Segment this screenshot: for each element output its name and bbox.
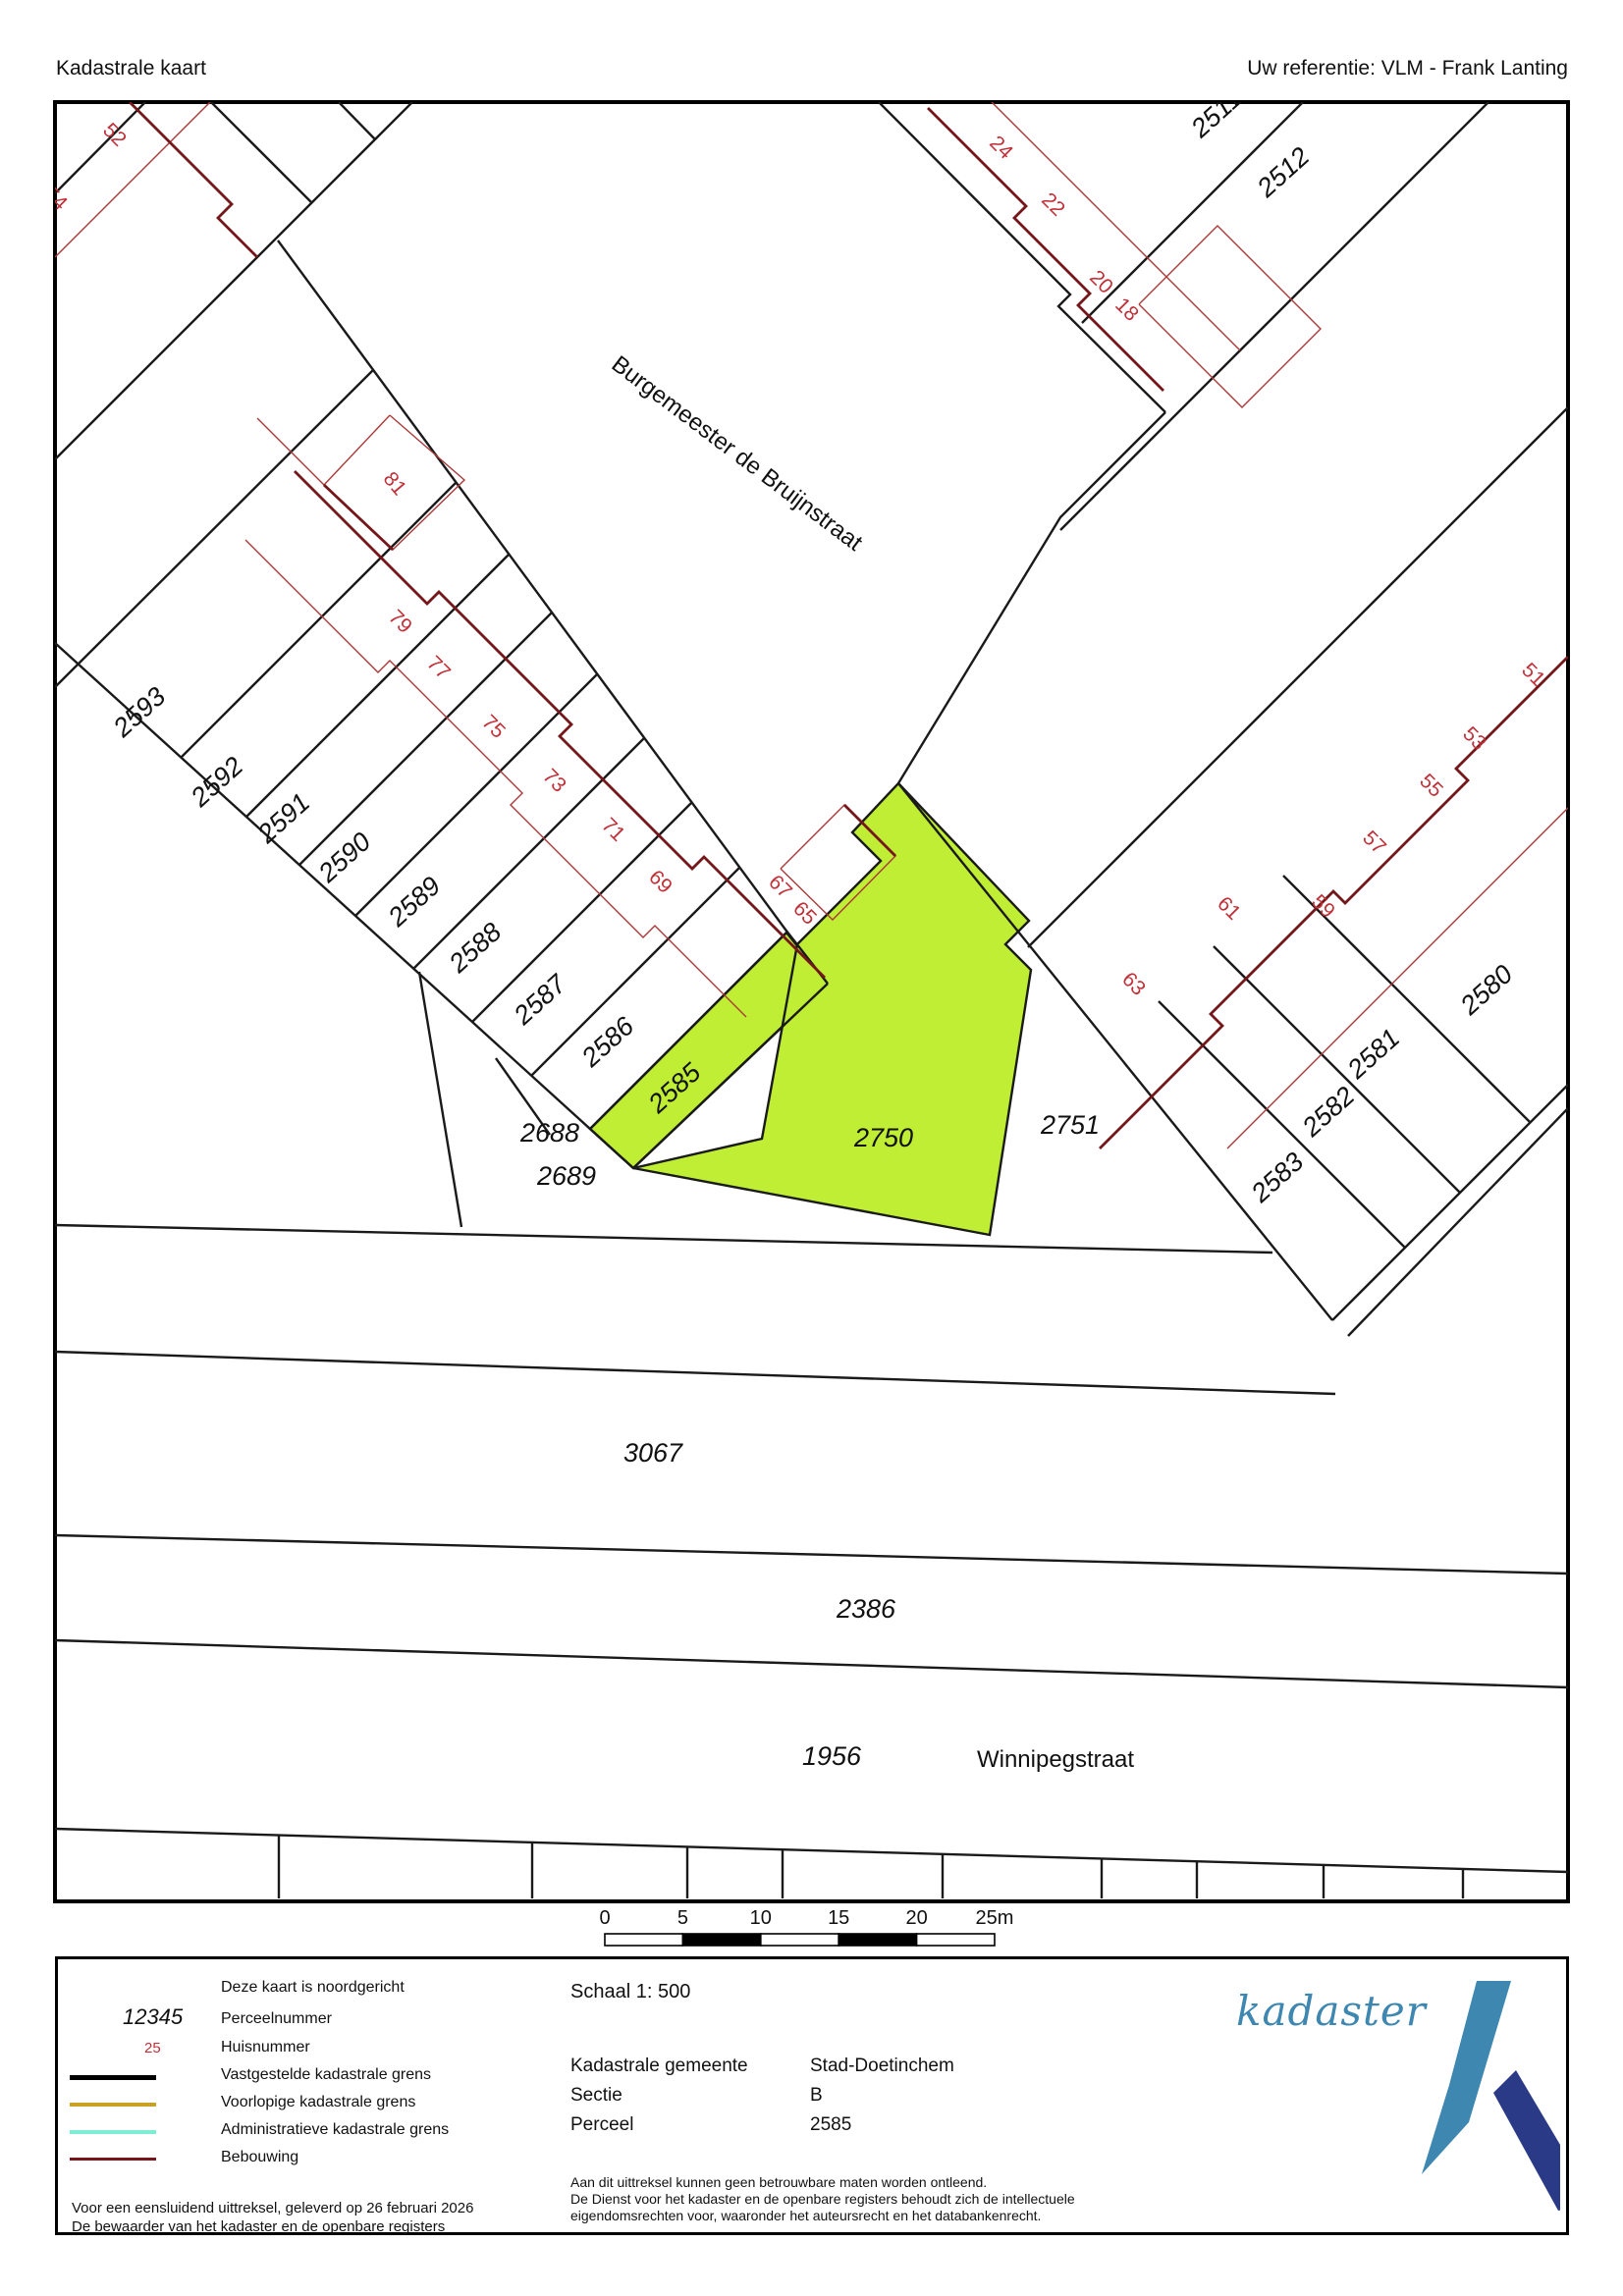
kadaster-logo-icon bbox=[1354, 1969, 1560, 2229]
vastgestelde-grens-swatch bbox=[70, 2075, 156, 2080]
voorlopige-grens-swatch bbox=[70, 2103, 156, 2107]
scalebar-label: 20 bbox=[905, 1907, 927, 1929]
scalebar-segment bbox=[917, 1934, 995, 1946]
parcel-number-label: 2688 bbox=[519, 1118, 579, 1148]
bebouwing-swatch bbox=[70, 2158, 156, 2161]
scalebar-label: 25m bbox=[976, 1907, 1014, 1929]
disclaimer-line-1: Aan dit uittreksel kunnen geen betrouwba… bbox=[570, 2174, 987, 2190]
perceel-key: Perceel bbox=[570, 2114, 633, 2136]
issued-note-1: Voor een eensluidend uittreksel, gelever… bbox=[72, 2200, 473, 2216]
scalebar-segment bbox=[761, 1934, 839, 1946]
scalebar-segment bbox=[605, 1934, 682, 1946]
perceelnummer-label: Perceelnummer bbox=[221, 2010, 332, 2028]
parcel-number-label: 2750 bbox=[853, 1123, 913, 1152]
gemeente-key: Kadastrale gemeente bbox=[570, 2056, 748, 2077]
issued-note-2: De bewaarder van het kadaster en de open… bbox=[72, 2218, 445, 2235]
scalebar-label: 15 bbox=[828, 1907, 849, 1929]
scalebar-label: 0 bbox=[599, 1907, 610, 1929]
administratieve-grens-label: Administratieve kadastrale grens bbox=[221, 2121, 449, 2139]
parcel-number-label: 3067 bbox=[623, 1438, 683, 1468]
huisnummer-label: Huisnummer bbox=[221, 2039, 310, 2056]
cadastral-map[interactable]: 2511251225932592259125902589258825872586… bbox=[0, 0, 1623, 2296]
sectie-key: Sectie bbox=[570, 2085, 622, 2107]
gemeente-value: Stad-Doetinchem bbox=[810, 2056, 954, 2077]
disclaimer-line-3: eigendomsrechten voor, waaronder het aut… bbox=[570, 2208, 1041, 2223]
north-note: Deze kaart is noordgericht bbox=[221, 1979, 405, 1997]
sectie-value: B bbox=[810, 2085, 823, 2107]
scalebar-segment bbox=[839, 1934, 916, 1946]
scalebar-segment bbox=[682, 1934, 760, 1946]
voorlopige-grens-label: Voorlopige kadastrale grens bbox=[221, 2094, 415, 2111]
perceelnummer-sample: 12345 bbox=[123, 2004, 183, 2030]
bebouwing-label: Bebouwing bbox=[221, 2149, 298, 2166]
vastgestelde-grens-label: Vastgestelde kadastrale grens bbox=[221, 2066, 431, 2084]
huisnummer-sample: 25 bbox=[144, 2040, 161, 2056]
parcel-number-label: 2689 bbox=[536, 1161, 596, 1191]
disclaimer-line-2: De Dienst voor het kadaster en de openba… bbox=[570, 2191, 1075, 2207]
kadastrale-kaart-page: Kadastrale kaart Uw referentie: VLM - Fr… bbox=[0, 0, 1623, 2296]
scalebar-label: 5 bbox=[677, 1907, 688, 1929]
parcel-number-label: 1956 bbox=[802, 1741, 862, 1771]
administratieve-grens-swatch bbox=[70, 2130, 156, 2134]
perceel-value: 2585 bbox=[810, 2114, 851, 2136]
legend-footer: Deze kaart is noordgericht 12345 Perceel… bbox=[55, 1956, 1569, 2235]
street-name-label: Winnipegstraat bbox=[977, 1746, 1134, 1773]
parcel-number-label: 2386 bbox=[836, 1594, 896, 1624]
scale-text: Schaal 1: 500 bbox=[570, 1981, 690, 2003]
scalebar-label: 10 bbox=[750, 1907, 772, 1929]
parcel-number-label: 2751 bbox=[1040, 1110, 1100, 1140]
